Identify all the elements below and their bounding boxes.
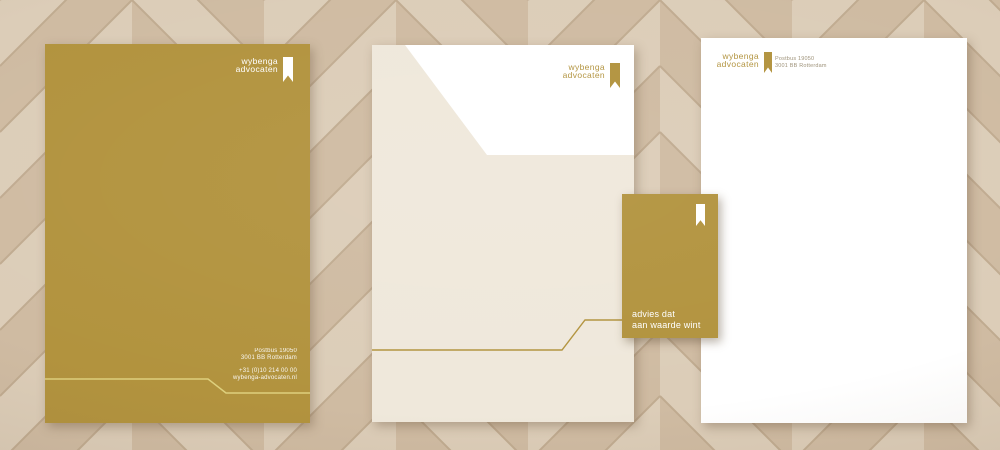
tagline-line1: advies dat <box>632 309 701 320</box>
contact-postal-city: 3001 BB Rotterdam <box>233 355 297 362</box>
letterhead-address: Postbus 19050 3001 BB Rotterdam <box>775 57 827 70</box>
contact-pobox: Postbus 19050 <box>233 348 297 355</box>
stationery-mockup-photo: wybenga advocaten Postbus 19050 3001 BB … <box>0 0 1000 450</box>
contact-website: wybenga-advocaten.nl <box>233 375 297 382</box>
address-line1: Postbus 19050 <box>775 57 827 63</box>
white-letterhead: wybenga advocaten Postbus 19050 3001 BB … <box>701 38 967 423</box>
brand-logo: wybenga advocaten <box>717 52 772 73</box>
tagline-line2: aan waarde wint <box>632 320 701 331</box>
bookmark-icon <box>696 204 705 226</box>
bookmark-icon <box>764 52 772 73</box>
brand-logo-text: wybenga advocaten <box>717 52 759 68</box>
tagline-text: advies dat aan waarde wint <box>632 309 701 330</box>
contact-phone: +31 (0)10 214 00 00 <box>233 368 297 375</box>
gold-tagline-notecard: advies dat aan waarde wint <box>622 194 718 338</box>
stepped-accent-line <box>372 45 634 422</box>
brand-name-line2: advocaten <box>717 60 759 68</box>
cream-folder-cover: wybenga advocaten <box>372 45 634 422</box>
address-line2: 3001 BB Rotterdam <box>775 64 827 70</box>
contact-block: Postbus 19050 3001 BB Rotterdam +31 (0)1… <box>233 348 297 382</box>
gold-folder-cover: wybenga advocaten Postbus 19050 3001 BB … <box>45 44 310 423</box>
